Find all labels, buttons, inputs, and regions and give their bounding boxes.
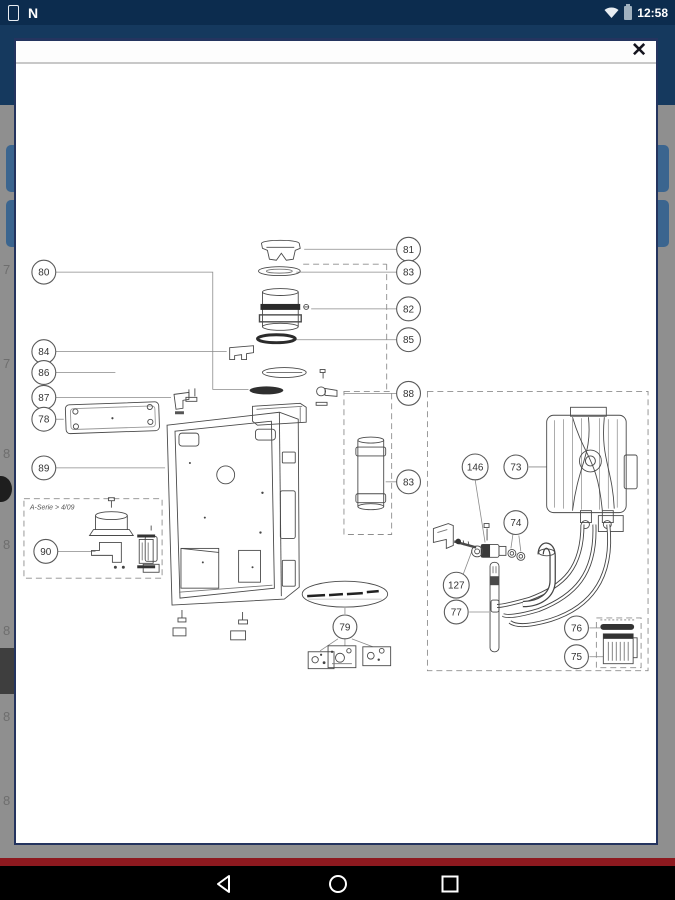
svg-text:86: 86 [38,368,50,379]
callout-90[interactable]: 90 [34,539,58,563]
part-valve-88 [316,370,337,406]
callout-77[interactable]: 77 [444,600,468,624]
svg-text:79: 79 [339,622,351,633]
callout-87[interactable]: 87 [32,385,56,409]
exploded-parts-diagram: A-Serie > 4/09 80 84 86 87 78 89 90 81 8… [16,65,656,843]
callout-81[interactable]: 81 [397,237,421,261]
part-bracket-right [433,524,461,549]
underlay-row-label: 8 [3,709,10,724]
underlay-row-label: 8 [3,623,10,638]
callout-80[interactable]: 80 [32,260,56,284]
callout-73[interactable]: 73 [504,455,528,479]
svg-text:90: 90 [40,547,52,558]
svg-text:88: 88 [403,389,415,400]
callout-89[interactable]: 89 [32,456,56,480]
svg-text:78: 78 [38,415,50,426]
callout-146[interactable]: 146 [462,454,488,480]
android-nav-bar [0,866,675,900]
part-strip-79 [302,581,387,607]
svg-text:74: 74 [510,518,522,529]
underlay-row-label: 7 [3,356,10,371]
home-icon [327,873,349,895]
parts-diagram-dialog: ✕ [14,38,658,845]
part-bracket-87 [174,392,189,414]
battery-icon [624,6,632,20]
recents-icon [439,873,461,895]
svg-text:87: 87 [38,393,50,404]
svg-text:73: 73 [510,462,522,473]
part-disc-83 [258,267,300,276]
part-heat-exchanger-73 [547,407,637,531]
part-bracket-84 [230,346,254,360]
svg-text:89: 89 [38,463,50,474]
svg-text:85: 85 [403,335,415,346]
device-icon [8,5,19,21]
part-canister-82 [259,289,309,331]
status-time: 12:58 [637,6,668,20]
recents-button[interactable] [428,872,472,896]
part-filter-75-76 [600,620,637,664]
callout-75[interactable]: 75 [565,645,589,669]
nfc-icon: N [28,5,38,21]
callout-86[interactable]: 86 [32,361,56,385]
home-button[interactable] [316,872,360,896]
part-cap-81 [261,240,300,260]
callout-85[interactable]: 85 [397,328,421,352]
status-bar: N 12:58 [0,0,675,25]
part-plate-78 [65,402,159,434]
back-button[interactable] [203,872,247,896]
underlay-row-label: 8 [3,537,10,552]
part-cabinet [167,403,306,605]
dialog-header: ✕ [16,41,656,64]
callout-82[interactable]: 82 [397,297,421,321]
back-icon [214,873,236,895]
underlay-row-label: 7 [3,262,10,277]
svg-text:81: 81 [403,245,415,256]
svg-text:127: 127 [448,581,465,592]
wifi-icon [604,6,619,19]
svg-text:84: 84 [38,347,50,358]
dialog-body: A-Serie > 4/09 80 84 86 87 78 89 90 81 8… [16,65,656,843]
part-ring-85 [257,335,295,343]
svg-text:83: 83 [403,268,415,279]
callout-74[interactable]: 74 [504,511,528,535]
part-rings-74 [508,549,525,560]
svg-text:146: 146 [467,462,484,473]
svg-text:77: 77 [451,607,463,618]
series-label: A-Serie > 4/09 [29,505,75,512]
callout-88[interactable]: 88 [397,381,421,405]
part-valve-146 [472,524,506,558]
part-seal [250,386,284,394]
callout-127[interactable]: 127 [443,572,469,598]
part-cabinet-screws [143,526,247,640]
callout-83a[interactable]: 83 [397,260,421,284]
close-icon[interactable]: ✕ [631,39,647,63]
callout-84[interactable]: 84 [32,340,56,364]
part-pipes [491,525,609,626]
svg-text:82: 82 [403,304,415,315]
screen: N 12:58 7 7 8 8 8 8 8 ✕ [0,0,675,900]
footer-red-strip [0,858,675,866]
part-cylinder-83 [356,437,386,510]
underlay-row-label: 8 [3,446,10,461]
detail-boxes-79 [308,646,390,669]
callout-83b[interactable]: 83 [397,470,421,494]
callout-78[interactable]: 78 [32,407,56,431]
svg-text:83: 83 [403,477,415,488]
svg-text:75: 75 [571,652,583,663]
part-gasket [262,368,306,378]
svg-text:76: 76 [571,623,583,634]
underlay-thumbnail [0,648,15,694]
callout-79[interactable]: 79 [333,615,357,639]
svg-text:80: 80 [38,268,50,279]
underlay-thumbnail [0,476,12,502]
underlay-row-label: 8 [3,793,10,808]
callout-76[interactable]: 76 [565,616,589,640]
